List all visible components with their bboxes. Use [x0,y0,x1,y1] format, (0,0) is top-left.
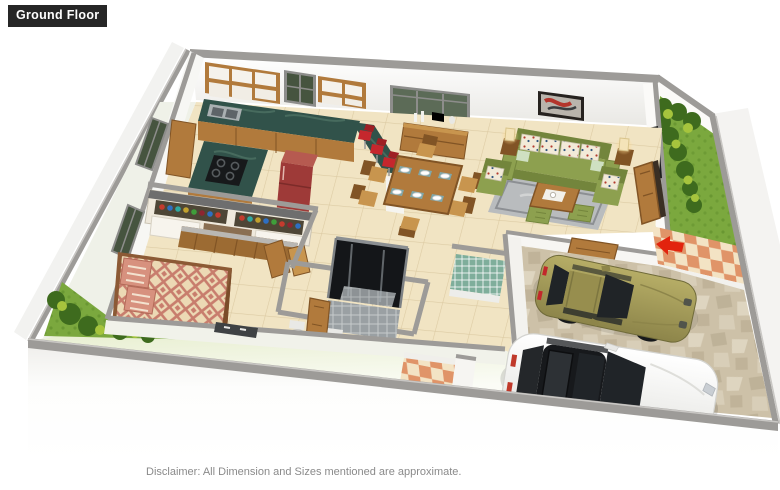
floor-plan-page: Ground Floor Disclaimer: All Dimension a… [0,0,780,490]
kitchen-window [284,70,316,107]
floor-label: Ground Floor [8,5,107,27]
table-lamp-left [500,127,520,156]
floor-plan-render [0,0,780,462]
dining-table [384,156,462,214]
shower-enclosure [328,238,408,308]
disclaimer-text: Disclaimer: All Dimension and Sizes ment… [146,466,461,478]
table-lamp-right [614,137,634,166]
